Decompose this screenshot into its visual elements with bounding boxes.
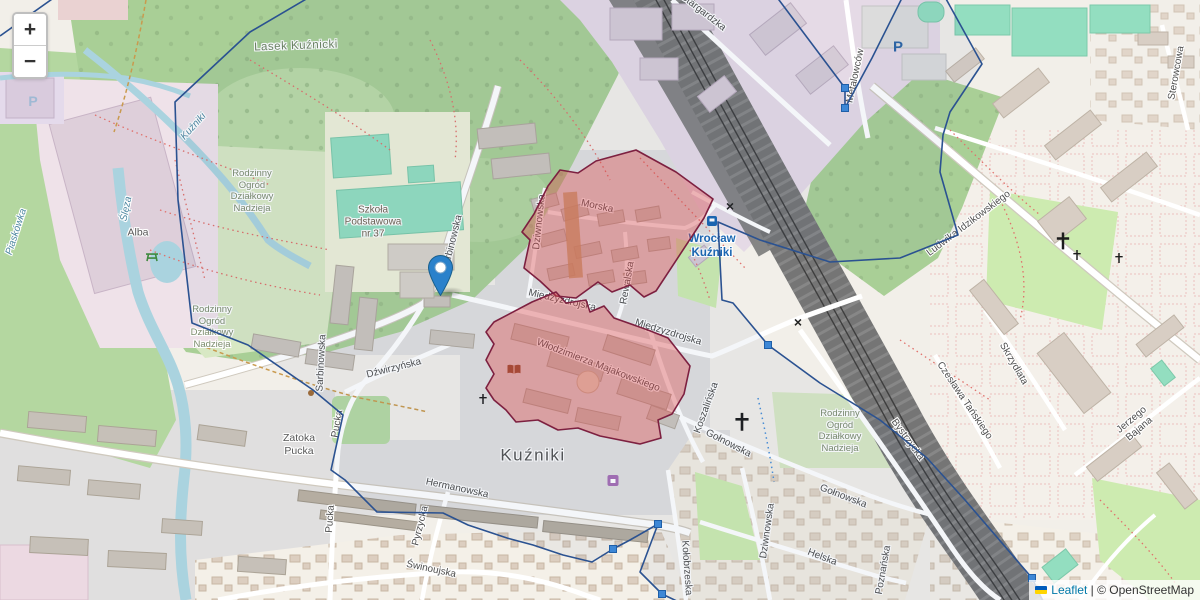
boundary-vertex-1[interactable] bbox=[841, 84, 849, 92]
map-marker[interactable] bbox=[428, 255, 453, 296]
zoom-control: + − bbox=[12, 12, 48, 79]
boundary-vertex-6[interactable] bbox=[658, 590, 666, 598]
ukraine-flag-icon bbox=[1035, 586, 1047, 594]
boundary-vertex-2[interactable] bbox=[841, 104, 849, 112]
zoom-in-button[interactable]: + bbox=[14, 14, 46, 46]
attribution-bar: Leaflet | © OpenStreetMap bbox=[1029, 580, 1200, 600]
zoom-out-button[interactable]: − bbox=[14, 46, 46, 77]
boundary-vertex-3[interactable] bbox=[764, 341, 772, 349]
osm-link[interactable]: OpenStreetMap bbox=[1109, 583, 1194, 597]
boundary-polygon[interactable] bbox=[175, 0, 1048, 600]
copyright-symbol: © bbox=[1097, 583, 1109, 597]
attribution-separator: | bbox=[1087, 583, 1097, 597]
boundary-vertex-5[interactable] bbox=[609, 545, 617, 553]
vector-overlay bbox=[0, 0, 1200, 600]
map-canvas[interactable]: Lasek KuźnickiRodzinny Ogród Działkowy N… bbox=[0, 0, 1200, 600]
leaflet-link[interactable]: Leaflet bbox=[1051, 583, 1087, 597]
boundary-vertex-4[interactable] bbox=[654, 520, 662, 528]
